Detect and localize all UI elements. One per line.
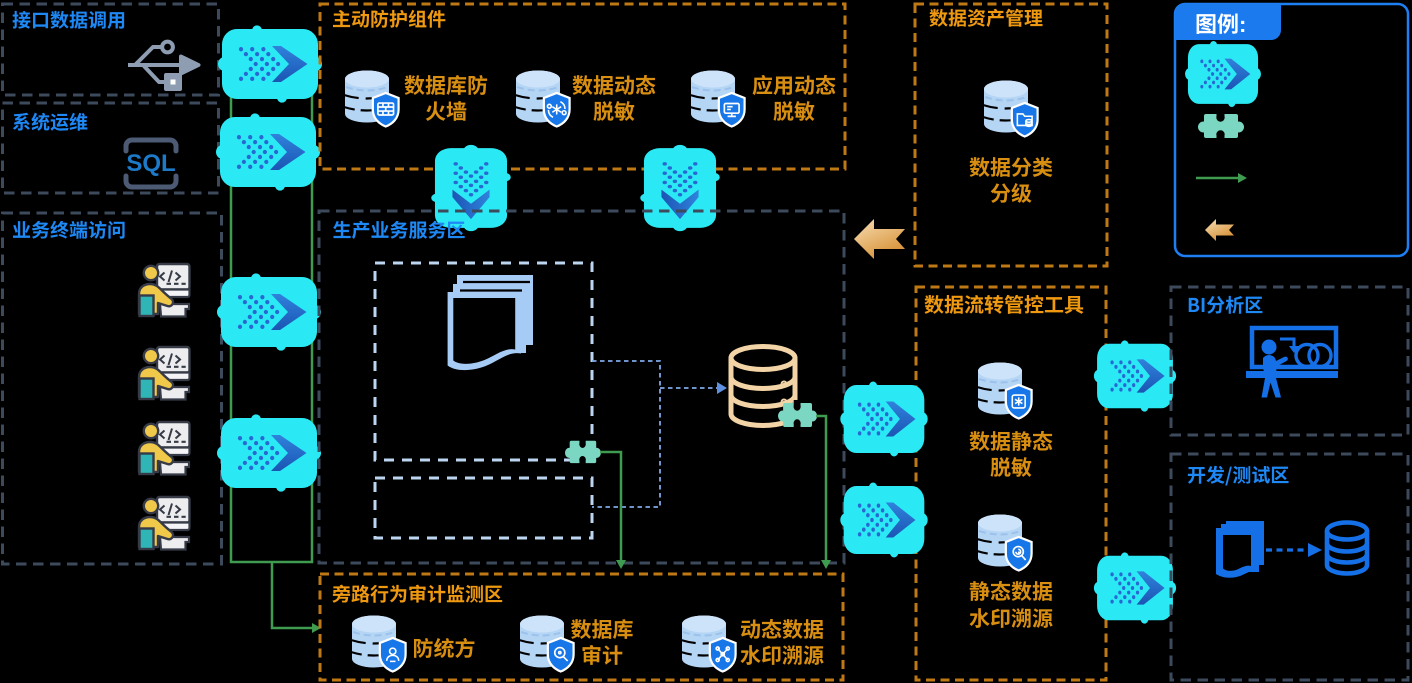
svg-text:SQL: SQL (126, 150, 175, 177)
svg-text::: : (1239, 12, 1246, 37)
